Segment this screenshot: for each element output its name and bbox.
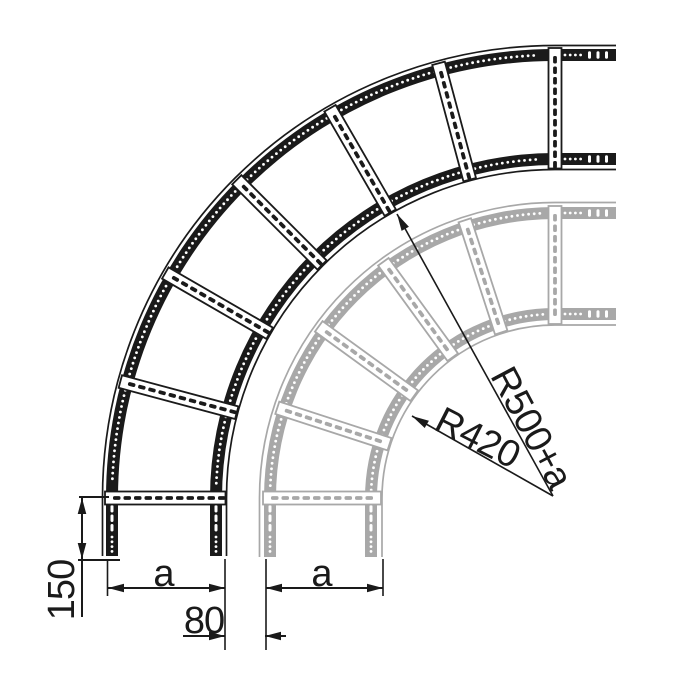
ladder-rung [162,267,273,339]
ladder-rung [105,492,226,505]
ladder-rung [549,206,562,324]
width-label-gray: a [311,553,333,595]
technical-drawing-page: R500+a R420 150 a a 80 [0,0,691,683]
ladder-rung [119,375,239,419]
width-label-dark: a [153,553,175,595]
dimension-arrowhead [78,543,87,559]
ladder-rung [432,62,476,182]
dimension-arrowhead [265,632,281,641]
ladder-rung [459,218,508,334]
dimension-arrowhead [78,498,87,514]
dimension-arrowhead [209,584,225,593]
ladder-rung [549,48,562,169]
ladder-rung [232,175,326,269]
ladder-rung [263,492,381,505]
dimension-arrowhead [266,584,282,593]
dimension-arrowhead [412,416,429,428]
ladder-rung [378,258,458,361]
cable-ladder-bend-diagram: R500+a R420 150 a a 80 [0,0,691,683]
ladder-rung [315,321,418,401]
ladder-rung [275,402,391,451]
dimension-arrowhead [108,584,124,593]
ladder-rung [324,105,396,216]
dimension-arrowhead [397,214,409,231]
dimension-arrowhead [367,584,383,593]
leg-height-label: 150 [41,560,83,620]
rail-perforations [111,51,609,553]
gap-label: 80 [184,600,224,642]
